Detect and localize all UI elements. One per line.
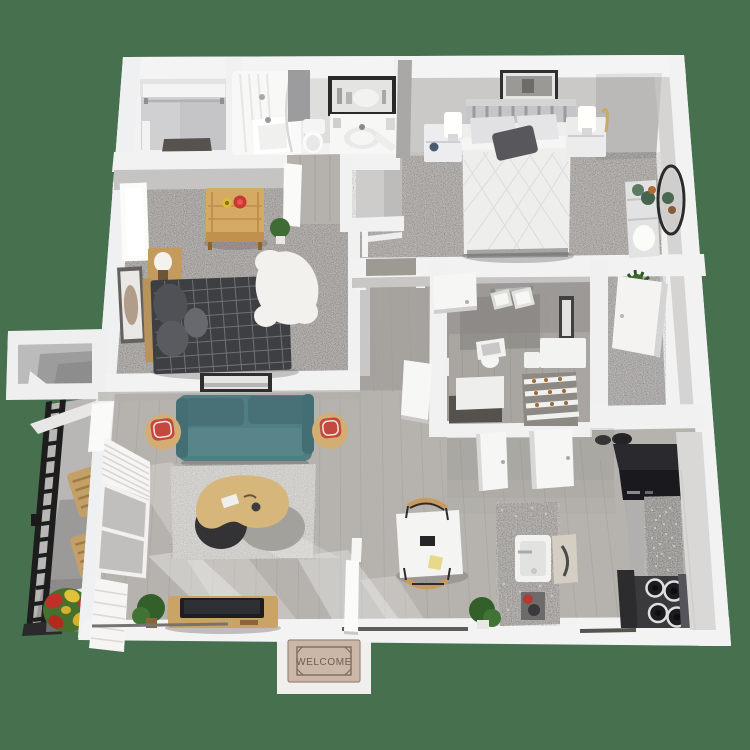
svg-text:WELCOME: WELCOME	[296, 657, 352, 668]
